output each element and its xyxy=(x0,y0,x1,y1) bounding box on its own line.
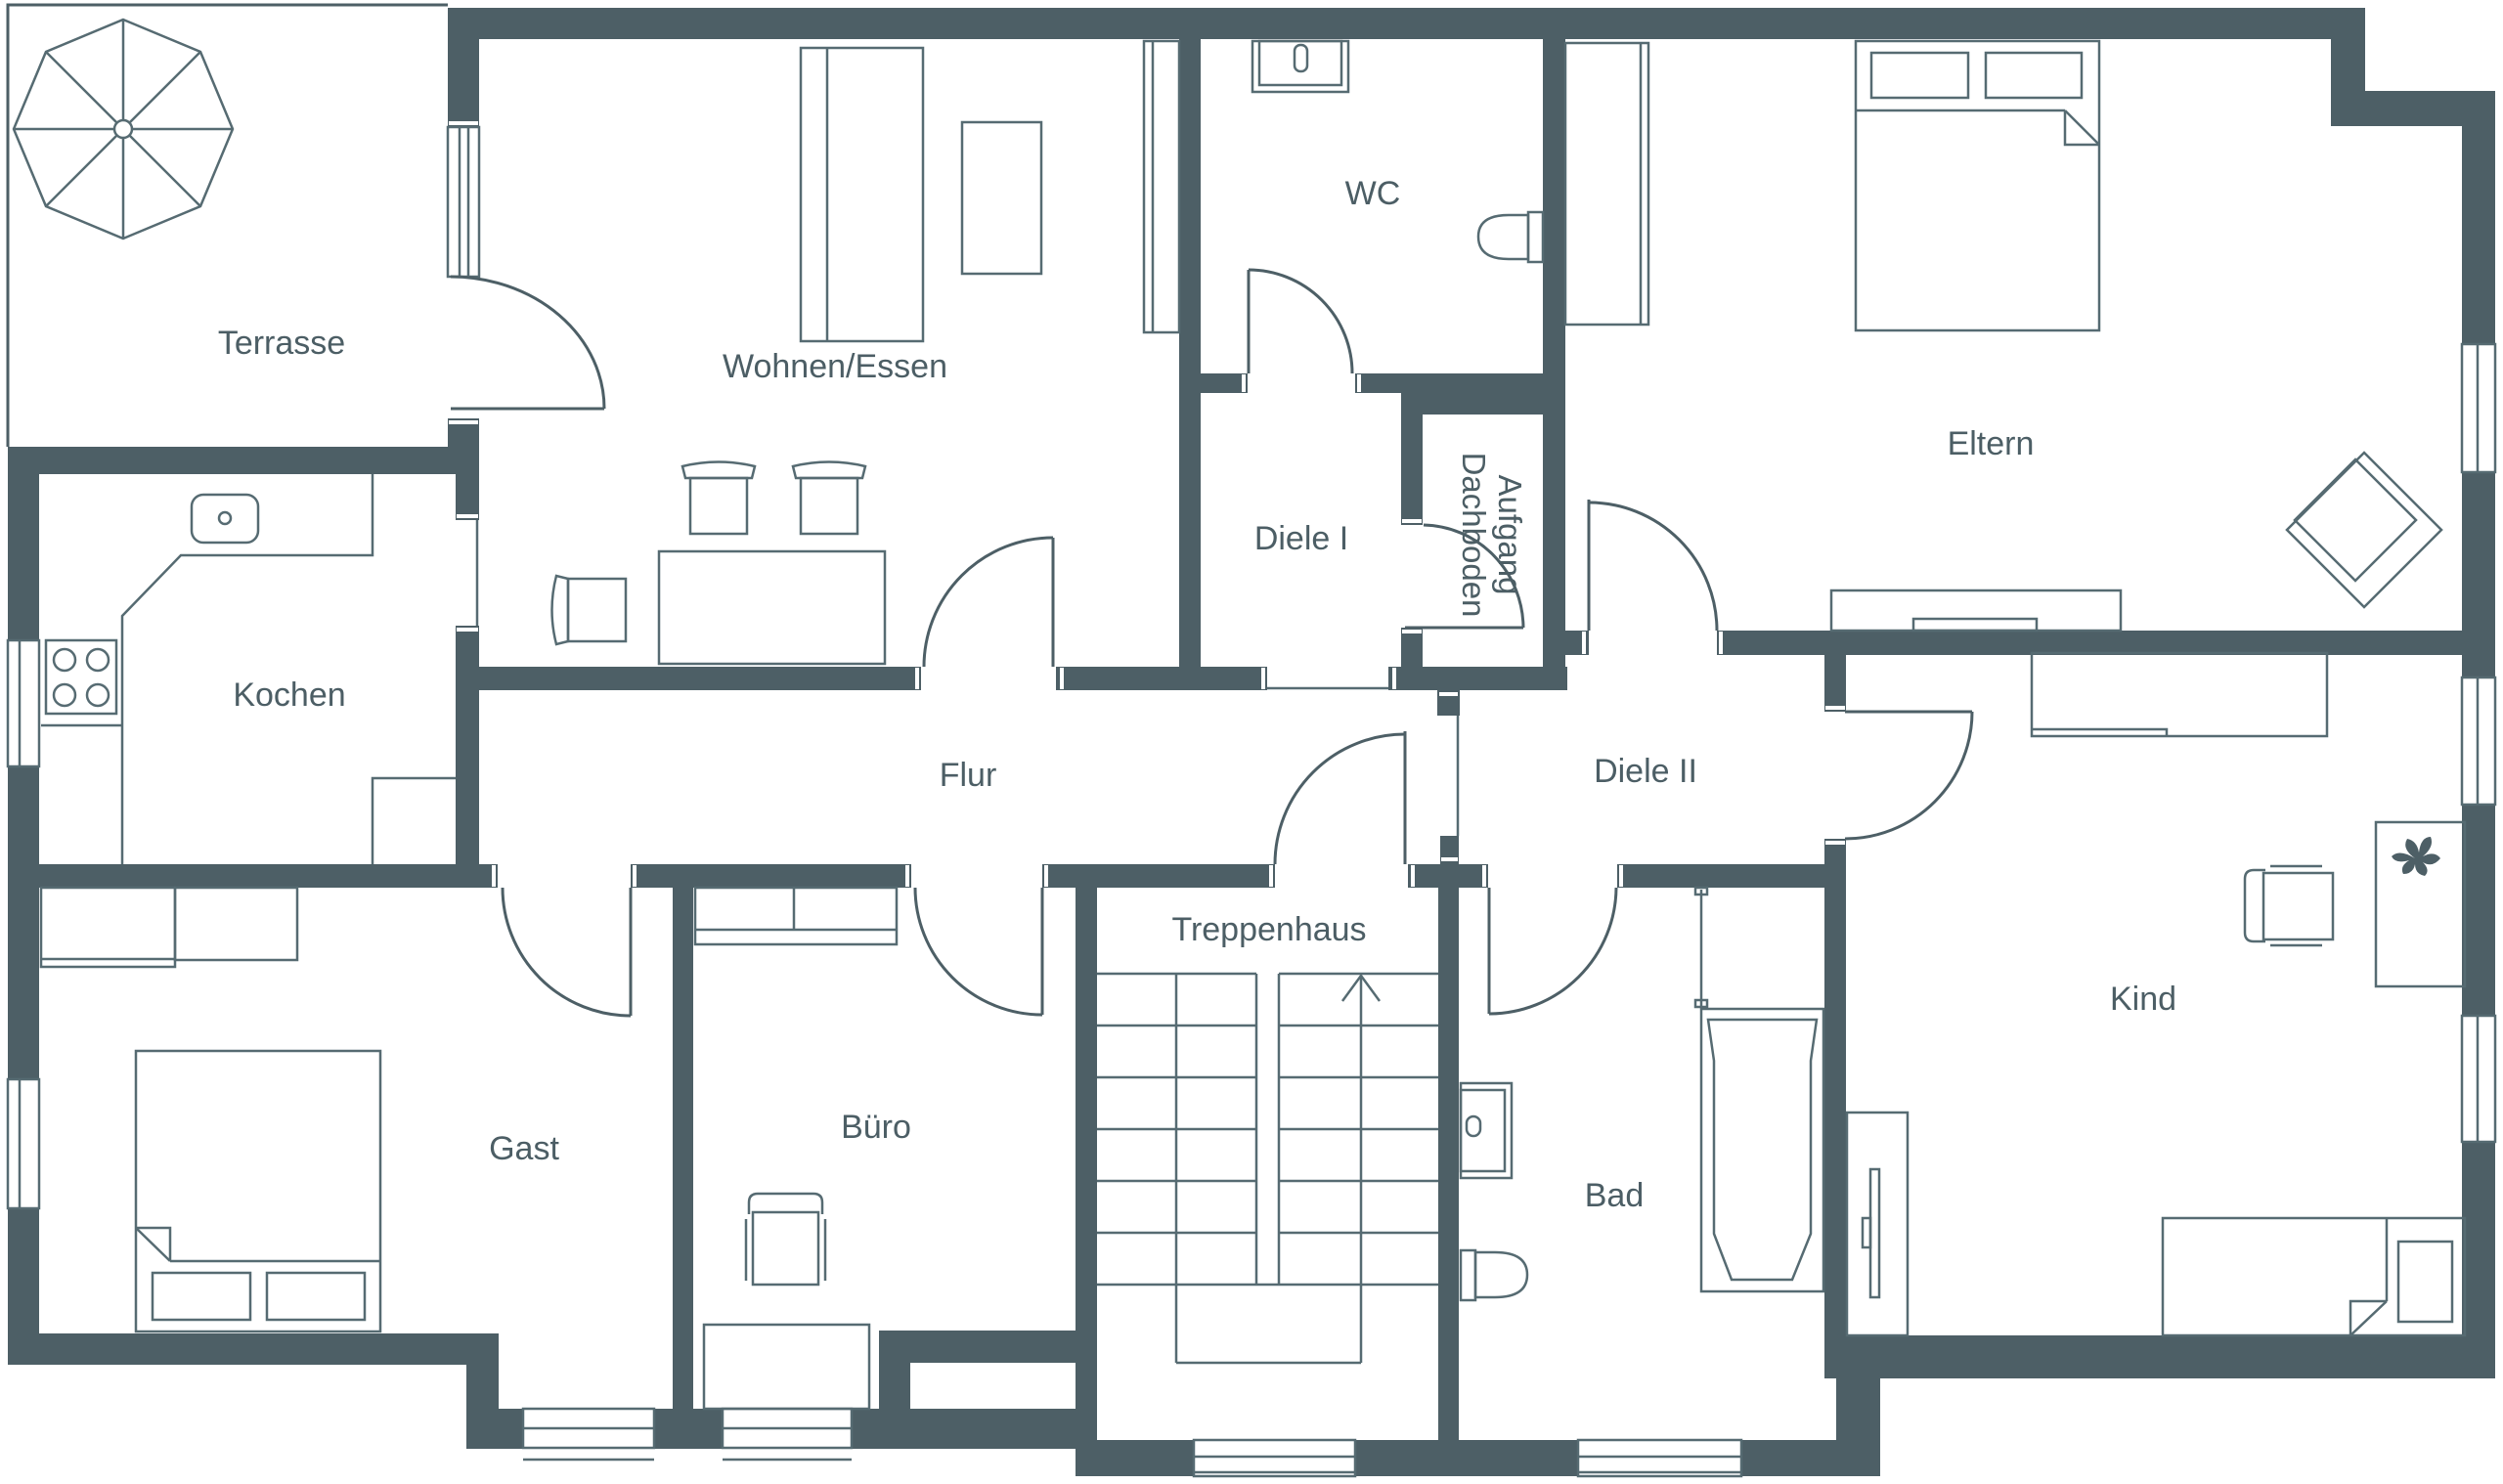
svg-text:Eltern: Eltern xyxy=(1948,425,2035,462)
svg-text:Diele I: Diele I xyxy=(1254,520,1348,557)
svg-text:Gast: Gast xyxy=(489,1130,559,1167)
svg-text:Dachboden: Dachboden xyxy=(1456,453,1492,618)
svg-text:WC: WC xyxy=(1345,175,1401,212)
svg-text:Flur: Flur xyxy=(940,757,997,794)
svg-text:Kind: Kind xyxy=(2110,981,2176,1018)
svg-text:Bad: Bad xyxy=(1585,1177,1645,1214)
svg-text:Terrasse: Terrasse xyxy=(218,325,345,362)
svg-text:Kochen: Kochen xyxy=(233,677,345,714)
svg-text:Diele II: Diele II xyxy=(1594,753,1697,790)
svg-text:Treppenhaus: Treppenhaus xyxy=(1171,911,1366,948)
svg-text:Wohnen/Essen: Wohnen/Essen xyxy=(723,348,947,385)
svg-text:Büro: Büro xyxy=(841,1109,911,1146)
svg-text:Aufgang: Aufgang xyxy=(1492,475,1528,595)
